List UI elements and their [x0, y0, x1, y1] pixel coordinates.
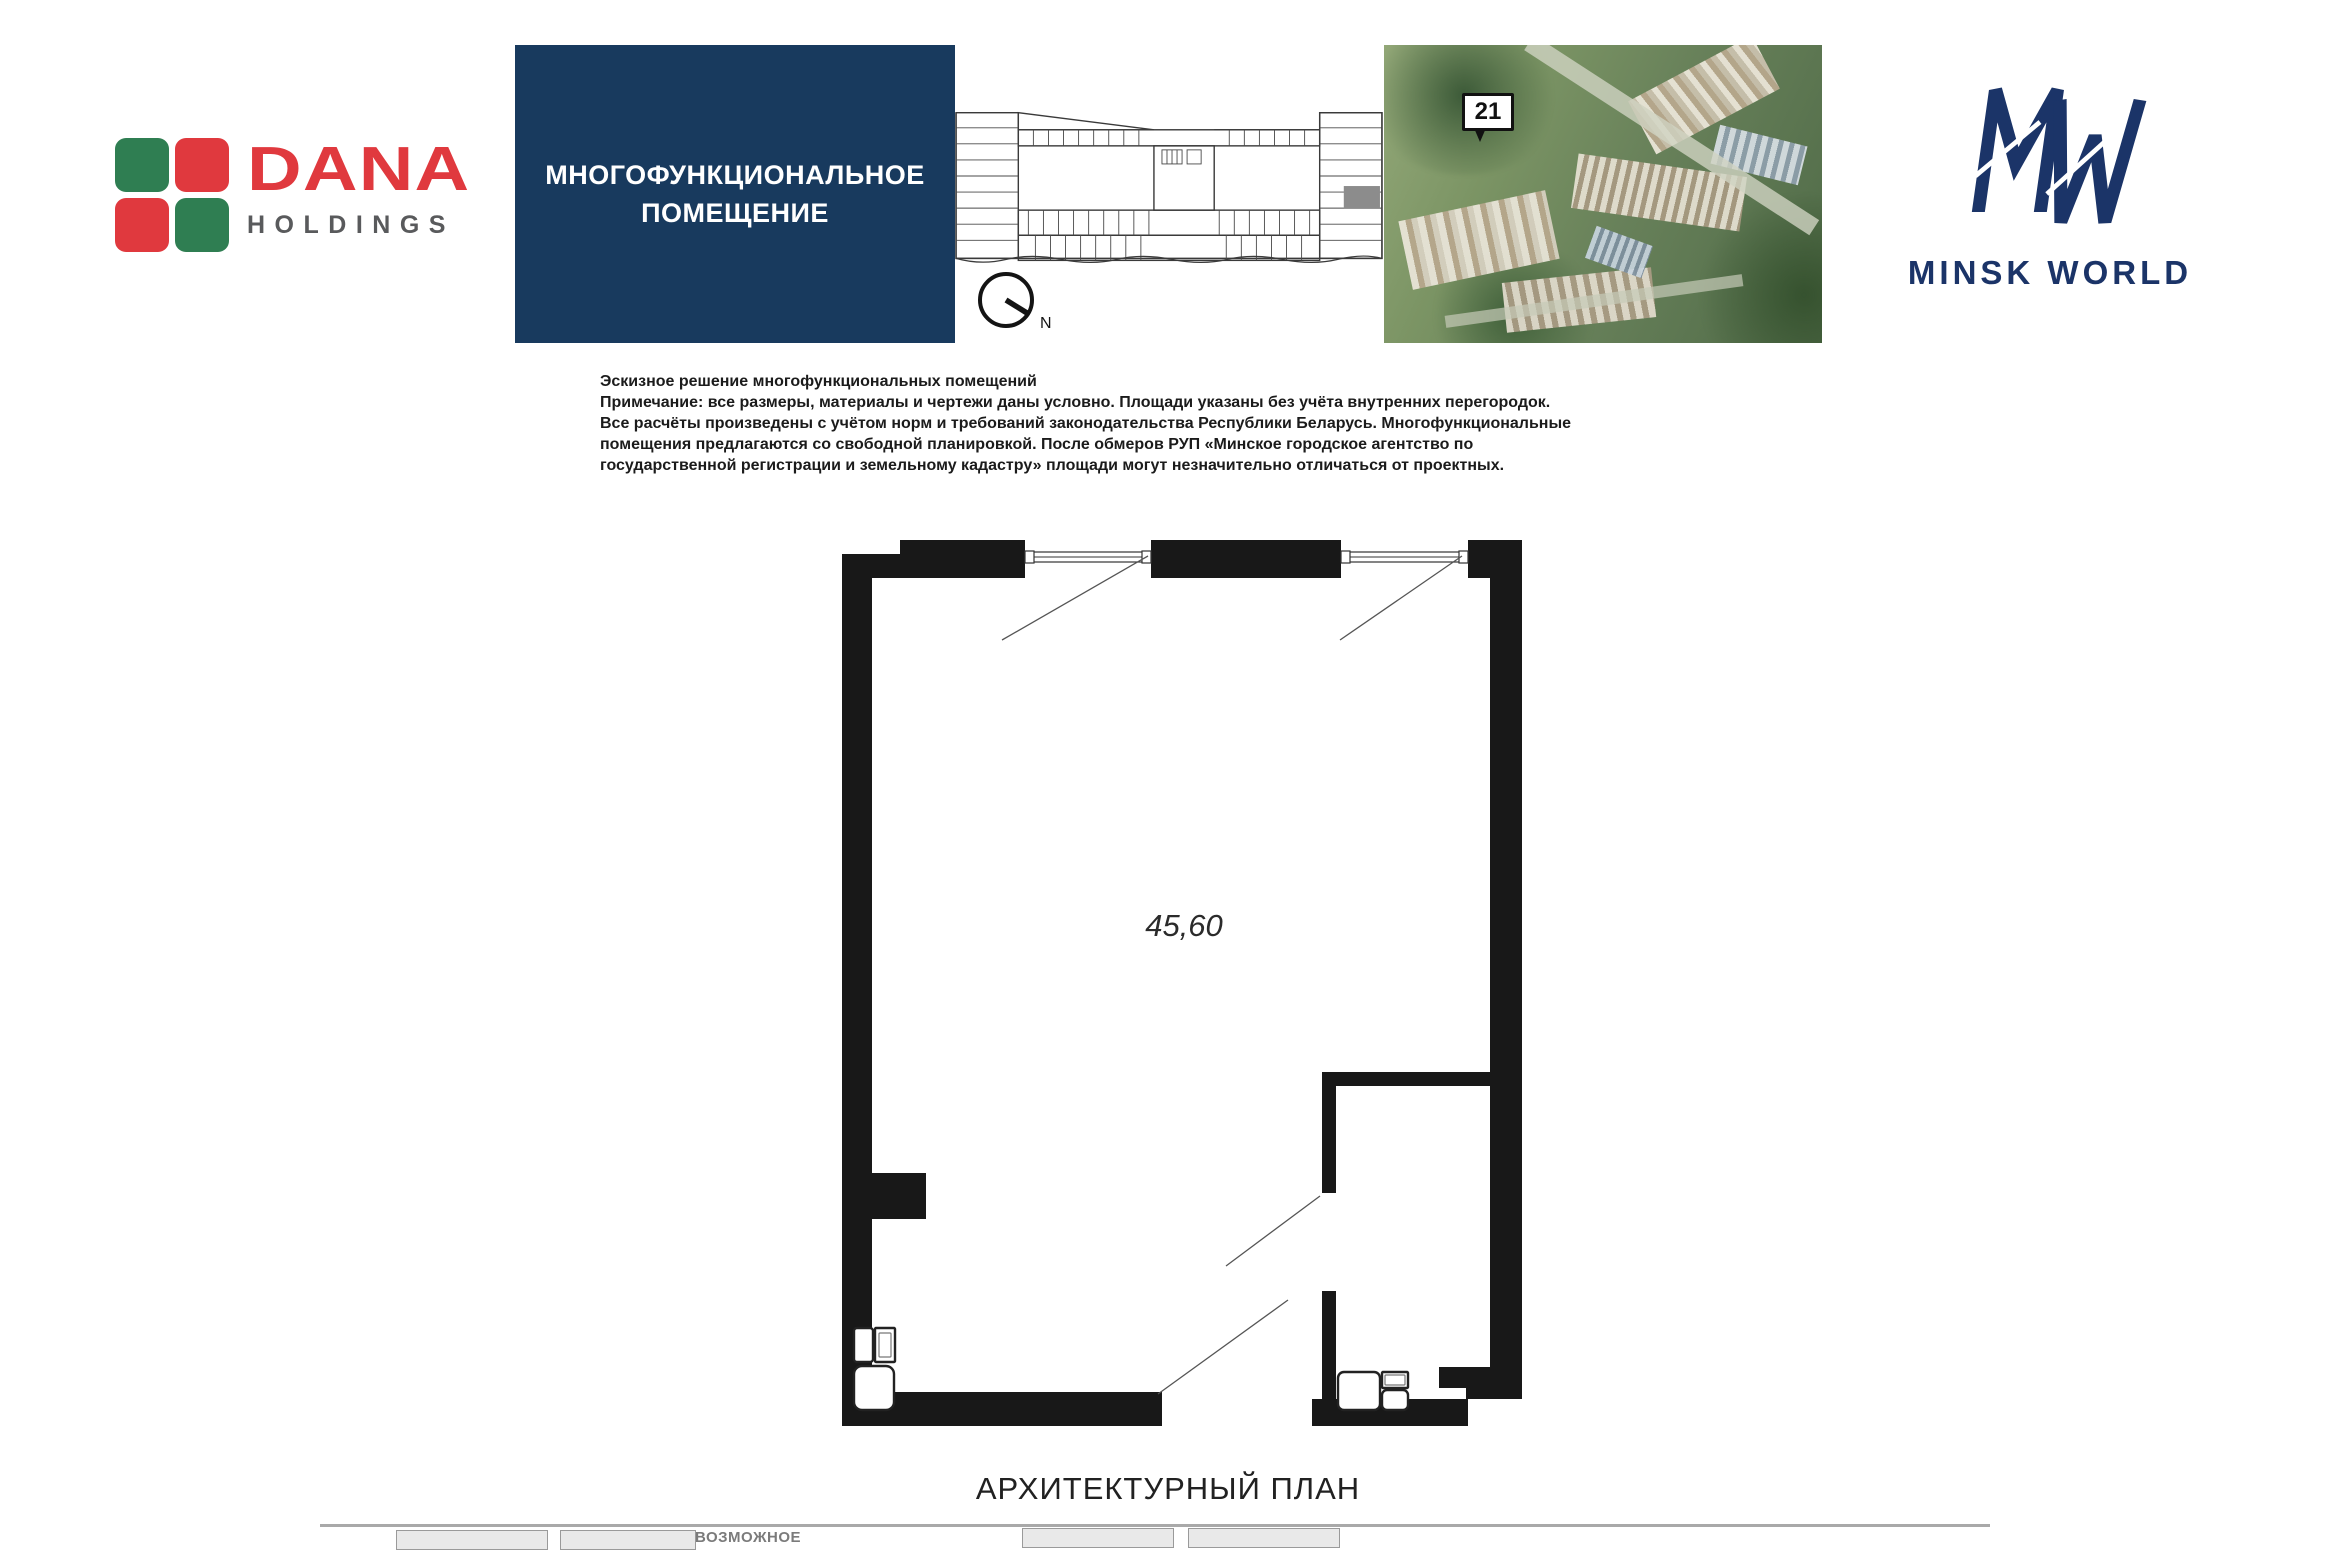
dana-holdings-logo: DANA HOLDINGS — [115, 138, 495, 260]
minsk-world-logo: MINSK WORLD — [1868, 72, 2232, 322]
room-area-label: 45,60 — [1145, 908, 1223, 943]
bottom-divider-line — [320, 1524, 1990, 1527]
dana-sub-text: HOLDINGS — [247, 211, 455, 240]
dana-logo-squares-icon — [115, 138, 229, 260]
legend-swatch — [1022, 1528, 1174, 1548]
window-2 — [1341, 551, 1468, 563]
premises-title-line2: ПОМЕЩЕНИЕ — [641, 194, 829, 232]
logo-square-red — [175, 138, 229, 192]
drawing-caption: АРХИТЕКТУРНЫЙ ПЛАН — [0, 1471, 2336, 1507]
minsk-world-wordmark: MINSK WORLD — [1908, 254, 2192, 292]
legend-swatch — [560, 1530, 696, 1550]
legend-partial-text: ВОЗМОЖНОЕ — [695, 1529, 801, 1546]
leader-lines — [1002, 556, 1462, 1394]
legend-swatch — [396, 1530, 548, 1550]
building-cluster — [1585, 226, 1653, 278]
dana-brand-text: DANA — [247, 138, 501, 202]
logo-square-green — [115, 138, 169, 192]
location-marker-21-label: 21 — [1475, 98, 1502, 126]
logo-square-green — [175, 198, 229, 252]
note-line: государственной регистрации и земельному… — [600, 455, 1760, 476]
note-line: Все расчёты произведены с учётом норм и … — [600, 413, 1760, 434]
highlighted-unit-cell — [1344, 186, 1380, 208]
page: { "header": { "dana_logo": { "brand": "D… — [0, 0, 2336, 1540]
plan-walls — [842, 540, 1522, 1426]
note-line: Эскизное решение многофункциональных пом… — [600, 371, 1760, 392]
window-1 — [1025, 551, 1151, 563]
legend-swatch — [1188, 1528, 1340, 1548]
note-line: Примечание: все размеры, материалы и чер… — [600, 392, 1760, 413]
aerial-site-photo: 21 — [1384, 45, 1822, 343]
compass-north-label: N — [1040, 315, 1052, 332]
disclaimer-note: Эскизное решение многофункциональных пом… — [600, 371, 1760, 476]
location-marker-21: 21 — [1462, 93, 1514, 131]
building-key-plan — [948, 85, 1390, 271]
logo-square-red — [115, 198, 169, 252]
mw-monogram-icon — [1950, 72, 2150, 242]
premises-title-box: МНОГОФУНКЦИОНАЛЬНОЕ ПОМЕЩЕНИЕ — [515, 45, 955, 343]
apartment-floor-plan: 45,60 — [842, 540, 1522, 1426]
north-compass-icon: N — [976, 270, 1086, 340]
premises-title-line1: МНОГОФУНКЦИОНАЛЬНОЕ — [545, 156, 925, 194]
note-line: помещения предлагаются со свободной план… — [600, 434, 1760, 455]
